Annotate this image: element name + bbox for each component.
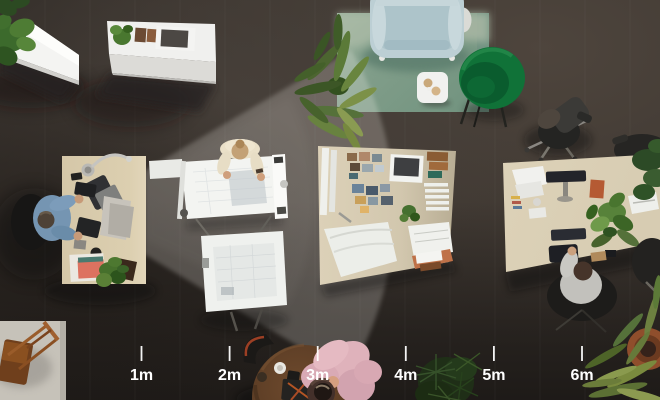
svg-text:3m: 3m bbox=[306, 367, 329, 384]
svg-text:5m: 5m bbox=[482, 367, 505, 384]
svg-text:1m: 1m bbox=[130, 367, 153, 384]
svg-text:4m: 4m bbox=[394, 367, 417, 384]
svg-text:6m: 6m bbox=[570, 367, 593, 384]
svg-text:2m: 2m bbox=[218, 367, 241, 384]
